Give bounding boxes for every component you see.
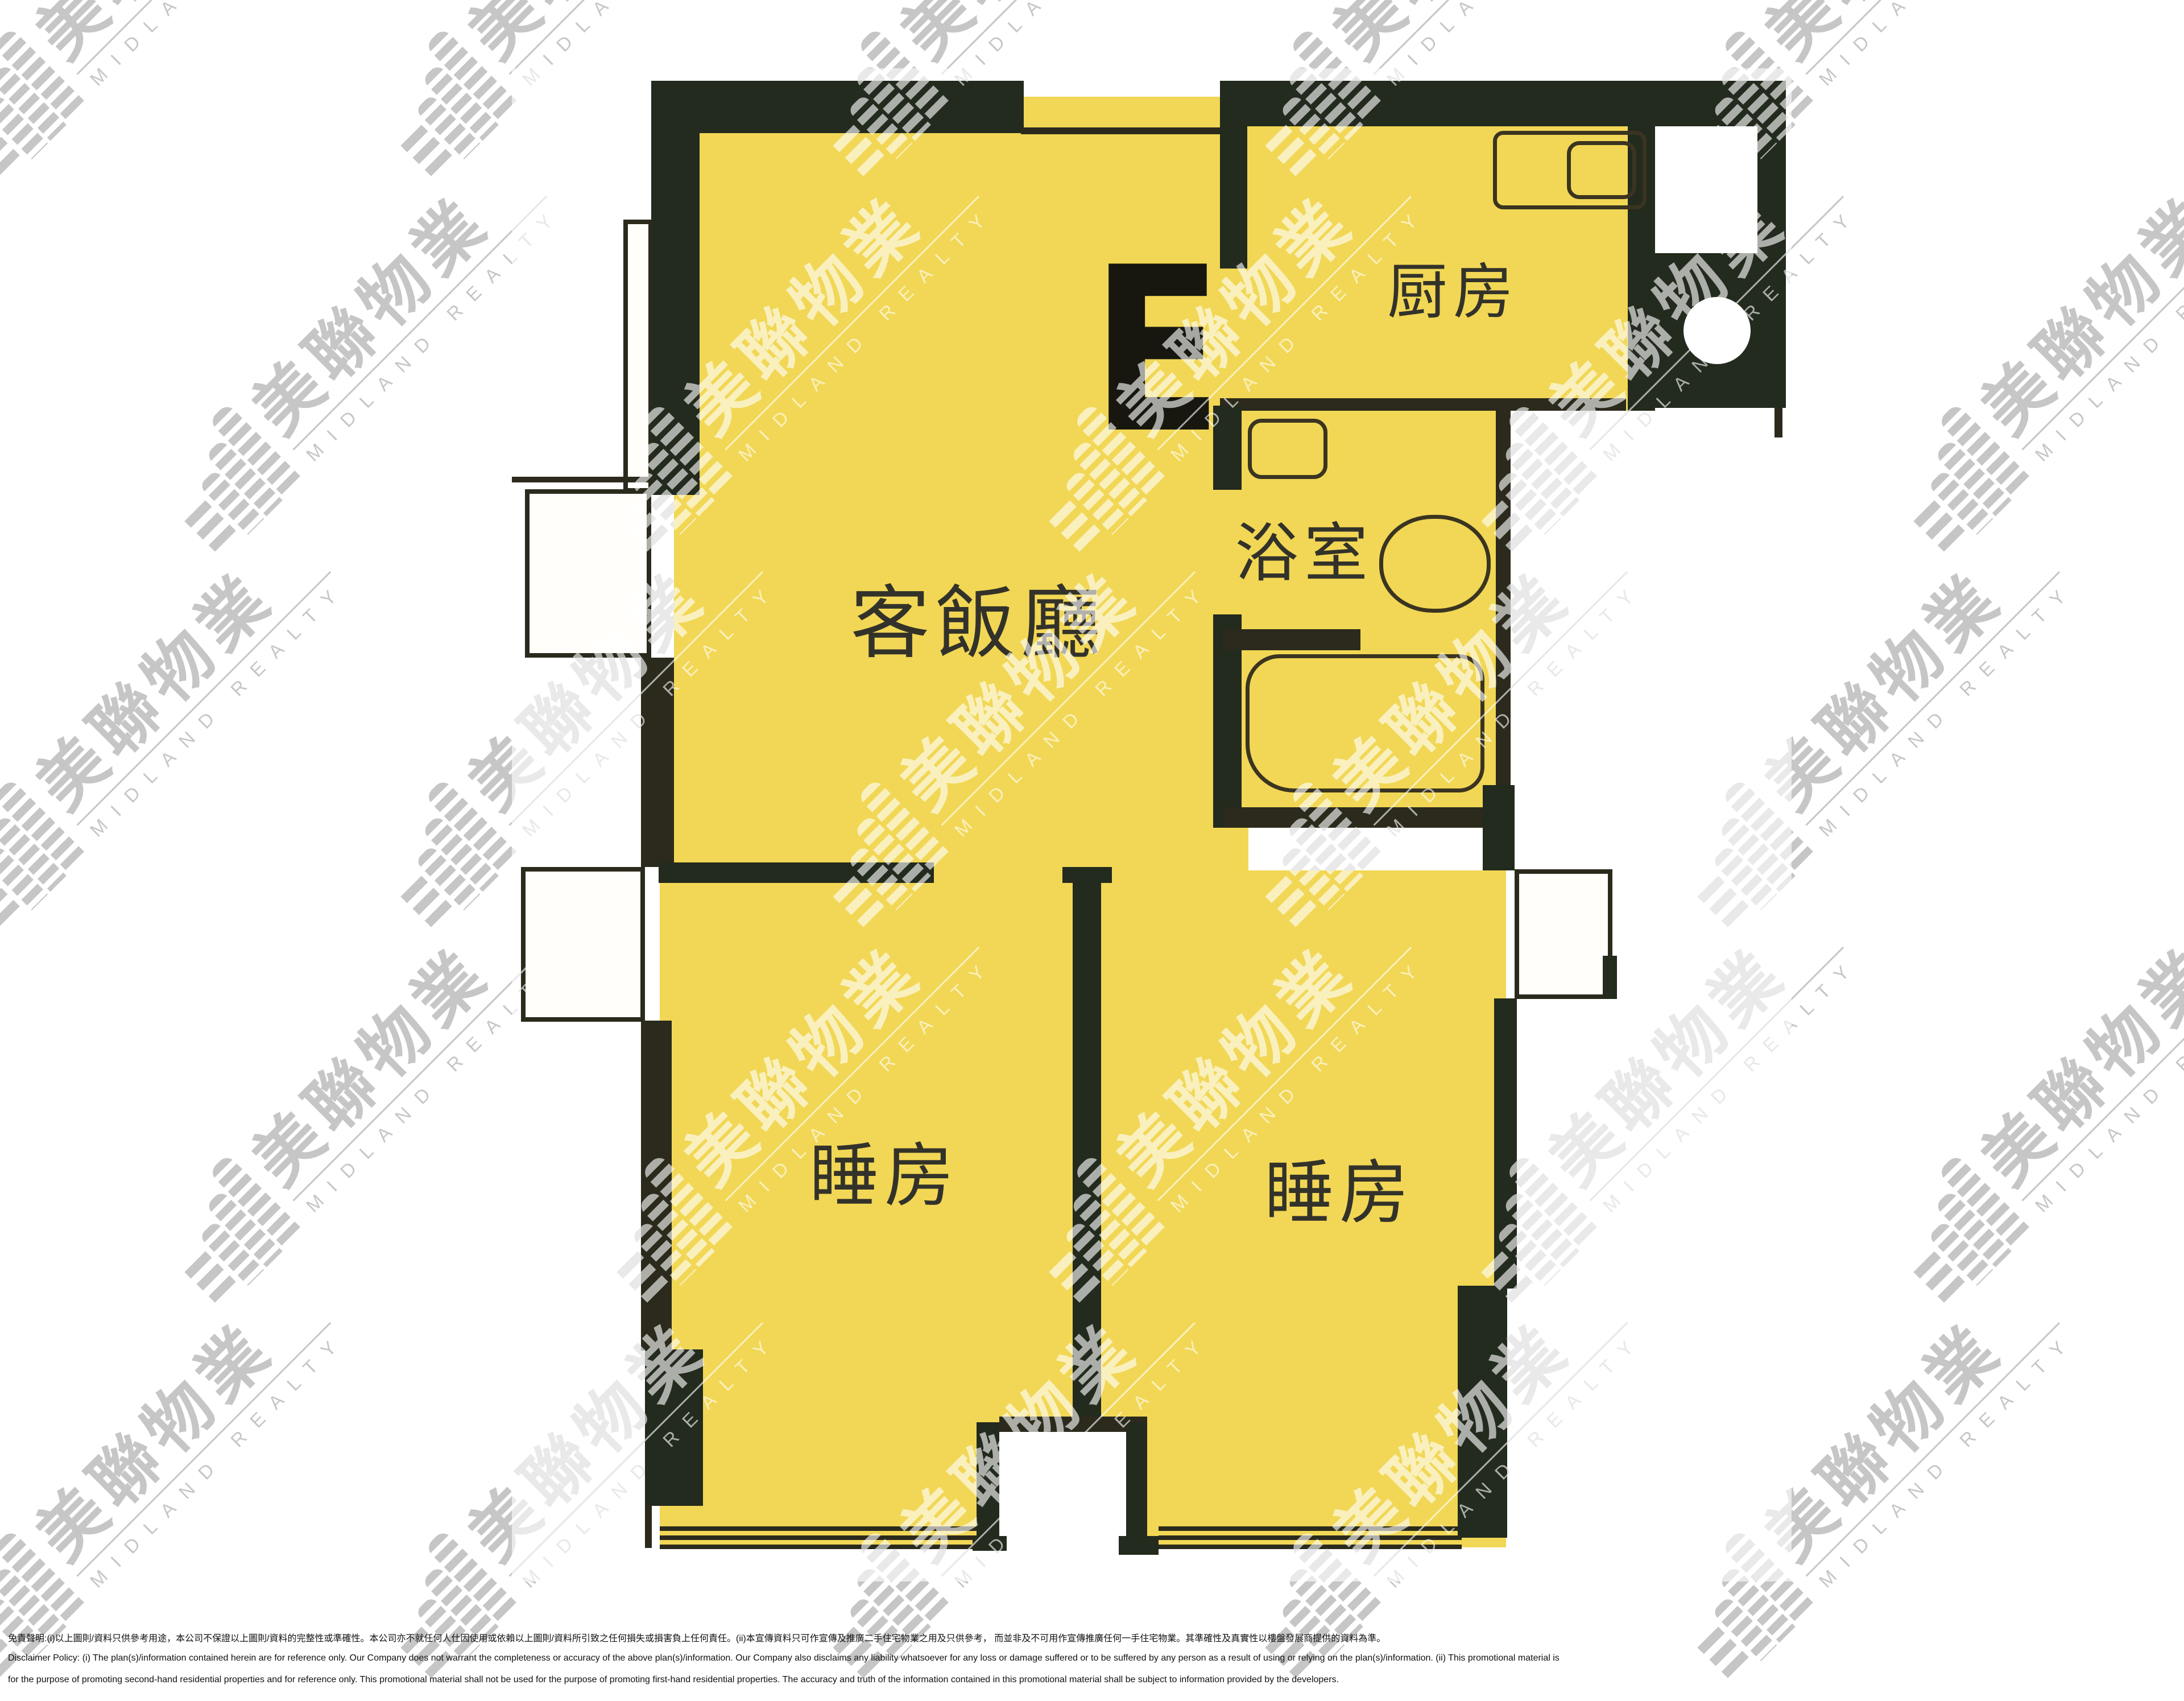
bathroom-sink-symbol: [1248, 419, 1327, 479]
label-kitchen: 厨房: [1354, 263, 1553, 323]
window-lines-bay-right: [1159, 1526, 1462, 1549]
wall-top-right: [1220, 81, 1786, 126]
wall-recess-left: [977, 1422, 999, 1550]
wall-between-bays: [641, 658, 674, 867]
ac-platform-box: [1515, 869, 1612, 999]
wall-bathroom-bottom: [1224, 807, 1494, 828]
floor-plan: E 客飯廳 厨房 浴室 睡房 睡房: [0, 0, 2184, 1701]
wall-recess-right: [1126, 1422, 1147, 1539]
pier-bottom-left: [645, 1349, 703, 1506]
wall-bedroom-right-east: [1494, 998, 1517, 1289]
unit-label: E: [1091, 266, 1223, 437]
wall-bedroom-left-west: [641, 1021, 672, 1351]
disclaimer-line-english-1: Disclaimer Policy: (i) The plan(s)/infor…: [8, 1653, 2175, 1663]
bay-window-bedroom-left: [521, 867, 645, 1022]
wall-living-west: [651, 81, 700, 495]
window-lines-bay-left: [660, 1526, 977, 1549]
label-bathroom: 浴室: [1222, 522, 1387, 586]
recess-right-foot: [1119, 1536, 1159, 1555]
entry-threshold-line: [1021, 127, 1223, 134]
label-bedroom-left: 睡房: [791, 1142, 978, 1212]
wall-bathroom-right-corner: [1483, 785, 1515, 870]
wall-south-over-recess: [999, 1417, 1147, 1432]
bay-recess-gap: [999, 1432, 1126, 1577]
wall-bedroom-divider: [1073, 883, 1101, 1430]
service-duct-block: [1655, 253, 1786, 408]
toilet-symbol: [1379, 515, 1491, 613]
duct-tail-line: [1774, 408, 1782, 437]
disclaimer-line-english-2: for the purpose of promoting second-hand…: [8, 1675, 2175, 1685]
floor-plan-page: 美聯物業 MIDLAND REALTY 美聯物業 MIDLAND REALTY …: [0, 0, 2184, 1701]
wall-bathroom-right: [1496, 406, 1511, 804]
living-dining-room-area: [674, 97, 1248, 887]
label-bedroom-right: 睡房: [1246, 1159, 1433, 1229]
bay1-top-line: [512, 477, 651, 482]
wall-duct-right: [1757, 126, 1786, 257]
wall-top-left: [651, 81, 1024, 133]
wall-divider-tee: [1062, 867, 1112, 883]
wall-bedroom-right-step: [1458, 1286, 1507, 1538]
disclaimer-line-chinese: 免責聲明:(i)以上圖則/資料只供參考用途，本公司不保證以上圖則/資料的完整性或…: [8, 1630, 2175, 1644]
wall-kitchen-bottom: [1220, 398, 1626, 411]
label-living-dining: 客飯廳: [819, 585, 1137, 664]
bay-window-living: [525, 489, 651, 658]
kitchen-sink-symbol: [1567, 141, 1636, 199]
duct-white-gap: [1655, 126, 1757, 253]
recess-left-foot: [973, 1536, 1007, 1551]
wall-living-bedroom-left: [659, 862, 934, 883]
bathtub-symbol: [1246, 654, 1484, 792]
west-window-ledge: [623, 220, 653, 493]
bay-left-west-edge: [645, 1505, 652, 1548]
wall-bathroom-divider: [1223, 629, 1360, 650]
ac-platform-pier: [1603, 956, 1617, 999]
duct-pipe-symbol: [1683, 297, 1751, 364]
